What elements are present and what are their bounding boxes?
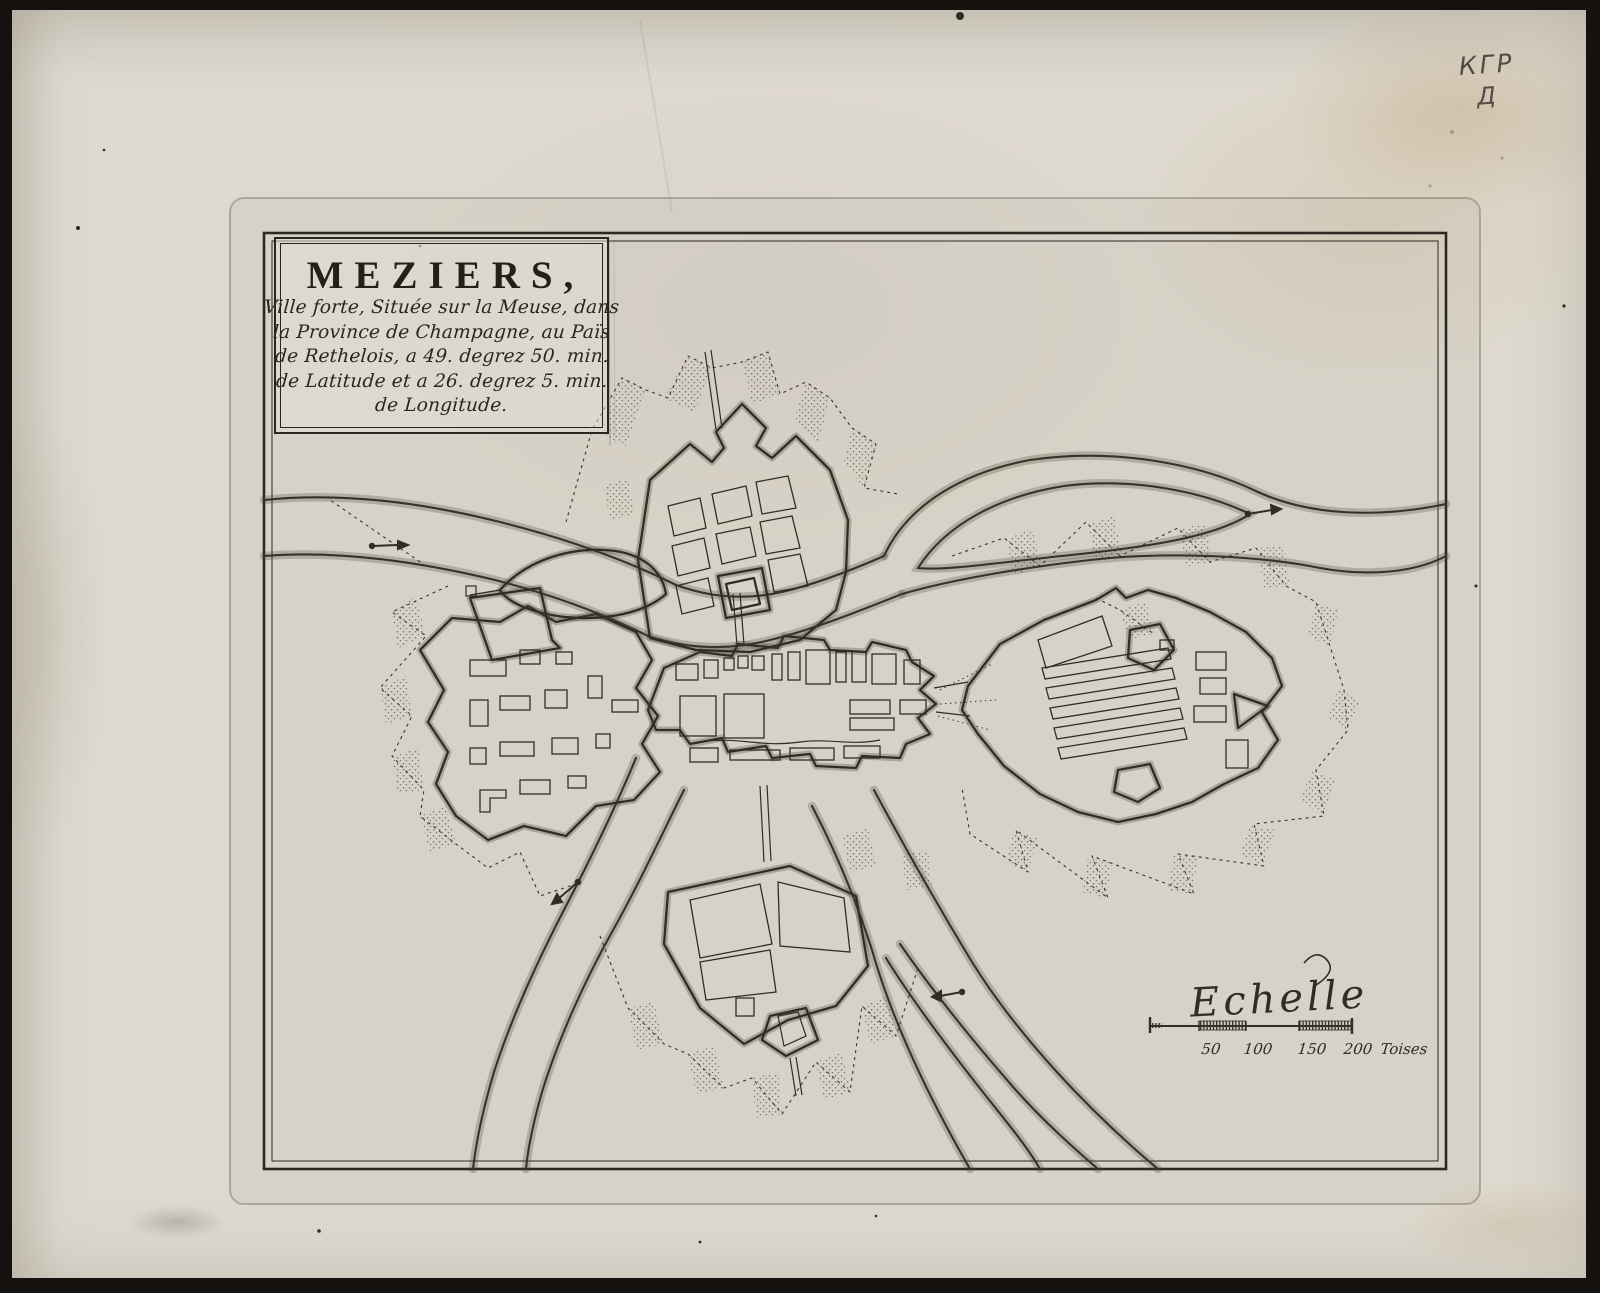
cartouche-line-5: de Longitude. — [374, 394, 508, 419]
scale-unit-label: Toises — [1380, 1040, 1429, 1058]
scale-tick-100: 100 — [1243, 1040, 1274, 1058]
cartouche-line-3: de Rethelois, a 49. degrez 50. min. — [274, 345, 610, 370]
scale-tick-labels: 50 100 150 200 Toises — [1162, 1040, 1422, 1060]
cartouche-line-2: la Province de Champagne, au Païs — [272, 321, 611, 346]
handwritten-inventory-mark: КГР Д — [1458, 50, 1518, 111]
scale-tick-50: 50 — [1201, 1040, 1222, 1058]
paper-sheet: MEZIERS, Ville forte, Située sur la Meus… — [12, 10, 1586, 1278]
scale-title: Echelle — [1189, 971, 1369, 1026]
engraved-map-art — [0, 0, 1600, 1293]
title-cartouche: MEZIERS, Ville forte, Située sur la Meus… — [274, 237, 609, 434]
map-title: MEZIERS, — [299, 256, 585, 296]
scale-tick-200: 200 — [1343, 1040, 1374, 1058]
handwritten-mark-line1: КГР — [1458, 48, 1516, 81]
cartouche-line-4: de Latitude et a 26. degrez 5. min. — [275, 370, 608, 395]
handwritten-mark-line2: Д — [1476, 81, 1517, 110]
scanned-map-page: MEZIERS, Ville forte, Située sur la Meus… — [0, 0, 1600, 1293]
cartouche-line-1: Ville forte, Située sur la Meuse, dans — [263, 296, 620, 321]
scale-tick-150: 150 — [1297, 1040, 1328, 1058]
cartouche-inner-frame: MEZIERS, Ville forte, Située sur la Meus… — [280, 243, 603, 428]
